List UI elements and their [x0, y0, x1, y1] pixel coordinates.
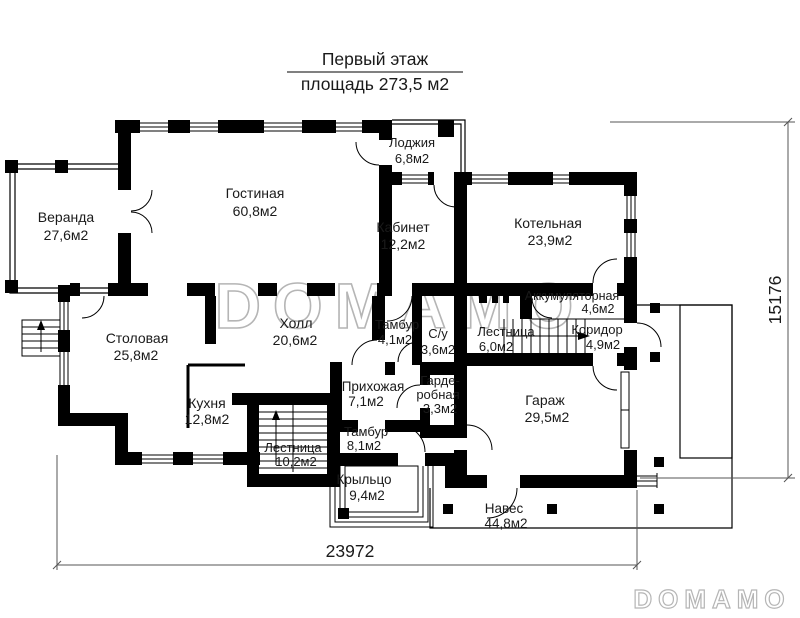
- floor-plan-drawing: DOMAMO: [0, 0, 800, 618]
- room-label-hall: Холл: [280, 315, 313, 331]
- room-area-wc: 3,6м2: [421, 342, 455, 357]
- floor-plan-page: DOMAMO: [0, 0, 800, 618]
- room-area-corridor: 4,9м2: [586, 337, 620, 352]
- porch-column: [338, 508, 349, 519]
- room-area-kitchen: 12,8м2: [185, 411, 230, 427]
- room-area-veranda: 27,6м2: [44, 227, 89, 243]
- room-area-canopy: 44,8м2: [484, 516, 527, 531]
- room-label-wc: С/у: [428, 326, 448, 341]
- room-label-vestibule1: Тамбур: [375, 317, 419, 332]
- room-label-corridor: Коридор: [571, 322, 622, 337]
- room-label-living: Гостиная: [226, 185, 285, 201]
- room-label-stairs2: Лестница: [264, 440, 322, 455]
- room-label-entry: Прихожая: [342, 379, 405, 394]
- room-area-porch: 9,4м2: [349, 488, 385, 503]
- room-area-stairs2: 10,2м2: [275, 454, 316, 469]
- watermark-corner: DOMAMO: [633, 584, 790, 614]
- room-label-wardrobe-1: Гарде-: [420, 373, 460, 388]
- room-area-living: 60,8м2: [233, 203, 278, 219]
- room-area-vestibule2: 8,1м2: [347, 438, 381, 453]
- room-area-hall: 20,6м2: [273, 332, 318, 348]
- room-area-stairs1: 6,0м2: [479, 339, 513, 354]
- room-area-wardrobe: 3,3м2: [423, 401, 457, 416]
- room-label-kitchen: Кухня: [188, 395, 225, 411]
- room-label-battery: Аккумуляторная: [525, 289, 619, 303]
- room-label-office: Кабинет: [376, 219, 430, 235]
- room-area-office: 12,2м2: [381, 236, 426, 252]
- room-area-battery: 4,6м2: [582, 302, 615, 316]
- room-label-boiler: Котельная: [514, 215, 582, 231]
- room-area-loggia: 6,8м2: [395, 151, 429, 166]
- room-label-dining: Столовая: [106, 330, 169, 346]
- plan-title: Первый этаж: [322, 49, 429, 69]
- room-area-garage: 29,5м2: [525, 409, 570, 425]
- room-label-garage: Гараж: [525, 392, 565, 408]
- room-area-boiler: 23,9м2: [528, 232, 573, 248]
- room-label-loggia: Лоджия: [389, 135, 435, 150]
- room-label-vestibule2: Тамбур: [344, 424, 388, 439]
- dimension-height-label: 15176: [765, 276, 785, 325]
- room-label-canopy: Навес: [485, 501, 524, 516]
- room-label-wardrobe-2: робная: [416, 387, 459, 402]
- room-area-entry: 7,1м2: [348, 394, 384, 409]
- room-area-dining: 25,8м2: [114, 347, 159, 363]
- dimension-width-label: 23972: [326, 541, 375, 561]
- plan-subtitle: площадь 273,5 м2: [301, 74, 449, 94]
- room-area-vestibule1: 4,1м2: [378, 332, 412, 347]
- room-label-porch: Крыльцо: [336, 472, 391, 487]
- room-label-veranda: Веранда: [38, 209, 95, 225]
- room-label-stairs1: Лестница: [477, 324, 535, 339]
